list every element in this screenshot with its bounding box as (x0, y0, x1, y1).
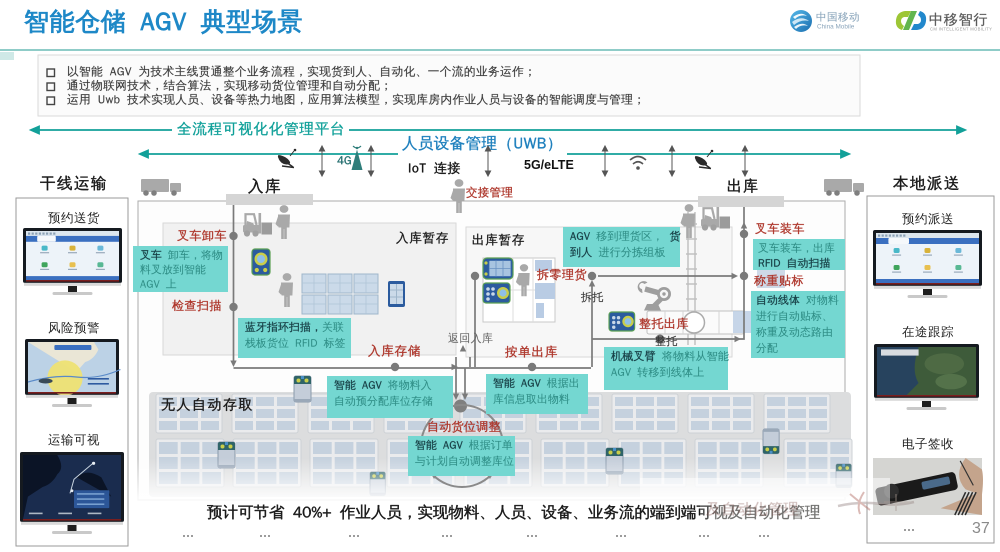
svg-text:5G/eLTE: 5G/eLTE (524, 158, 574, 172)
svg-text:China Mobile: China Mobile (817, 24, 855, 31)
svg-text:37: 37 (972, 520, 990, 537)
svg-text:CM INTELLIGENT MOBILITY: CM INTELLIGENT MOBILITY (930, 27, 992, 32)
